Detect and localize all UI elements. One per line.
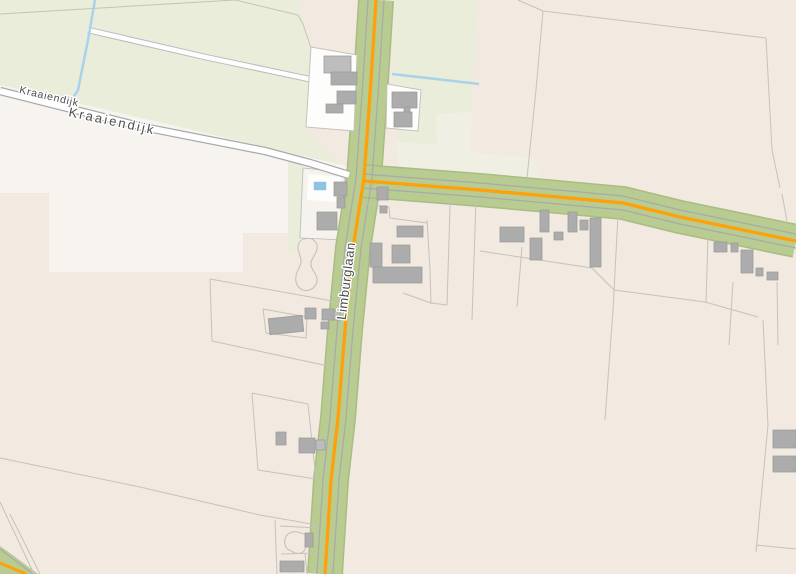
building (773, 430, 796, 448)
building (540, 210, 549, 232)
building (380, 206, 387, 213)
building (773, 456, 796, 472)
building (337, 197, 345, 208)
building (316, 440, 325, 450)
building (500, 227, 524, 242)
building (767, 272, 778, 280)
building (334, 182, 347, 196)
building (404, 107, 410, 112)
building (530, 238, 542, 260)
building (394, 112, 412, 127)
building (321, 322, 329, 329)
building (268, 315, 303, 334)
building (741, 250, 753, 273)
building (370, 243, 382, 267)
building (299, 438, 315, 453)
building (317, 212, 337, 230)
building (377, 187, 388, 200)
building (305, 308, 316, 319)
building (397, 226, 423, 237)
building (580, 220, 588, 230)
building (373, 267, 422, 283)
building (392, 92, 417, 108)
swimming-pool (313, 181, 327, 191)
building (392, 245, 410, 263)
building (324, 56, 351, 73)
building (731, 243, 738, 252)
building (337, 91, 356, 104)
building (331, 72, 357, 85)
building (276, 432, 286, 445)
map-viewport: KraaiendijkKraaiendijkLimburglaan (0, 0, 796, 574)
building (590, 218, 601, 267)
building (280, 561, 304, 572)
building (756, 268, 763, 276)
building (714, 242, 727, 252)
building (326, 104, 343, 113)
building (305, 533, 313, 547)
building (322, 309, 334, 320)
building (554, 232, 563, 240)
building (568, 212, 577, 232)
map-canvas[interactable]: KraaiendijkKraaiendijkLimburglaan (0, 0, 796, 574)
